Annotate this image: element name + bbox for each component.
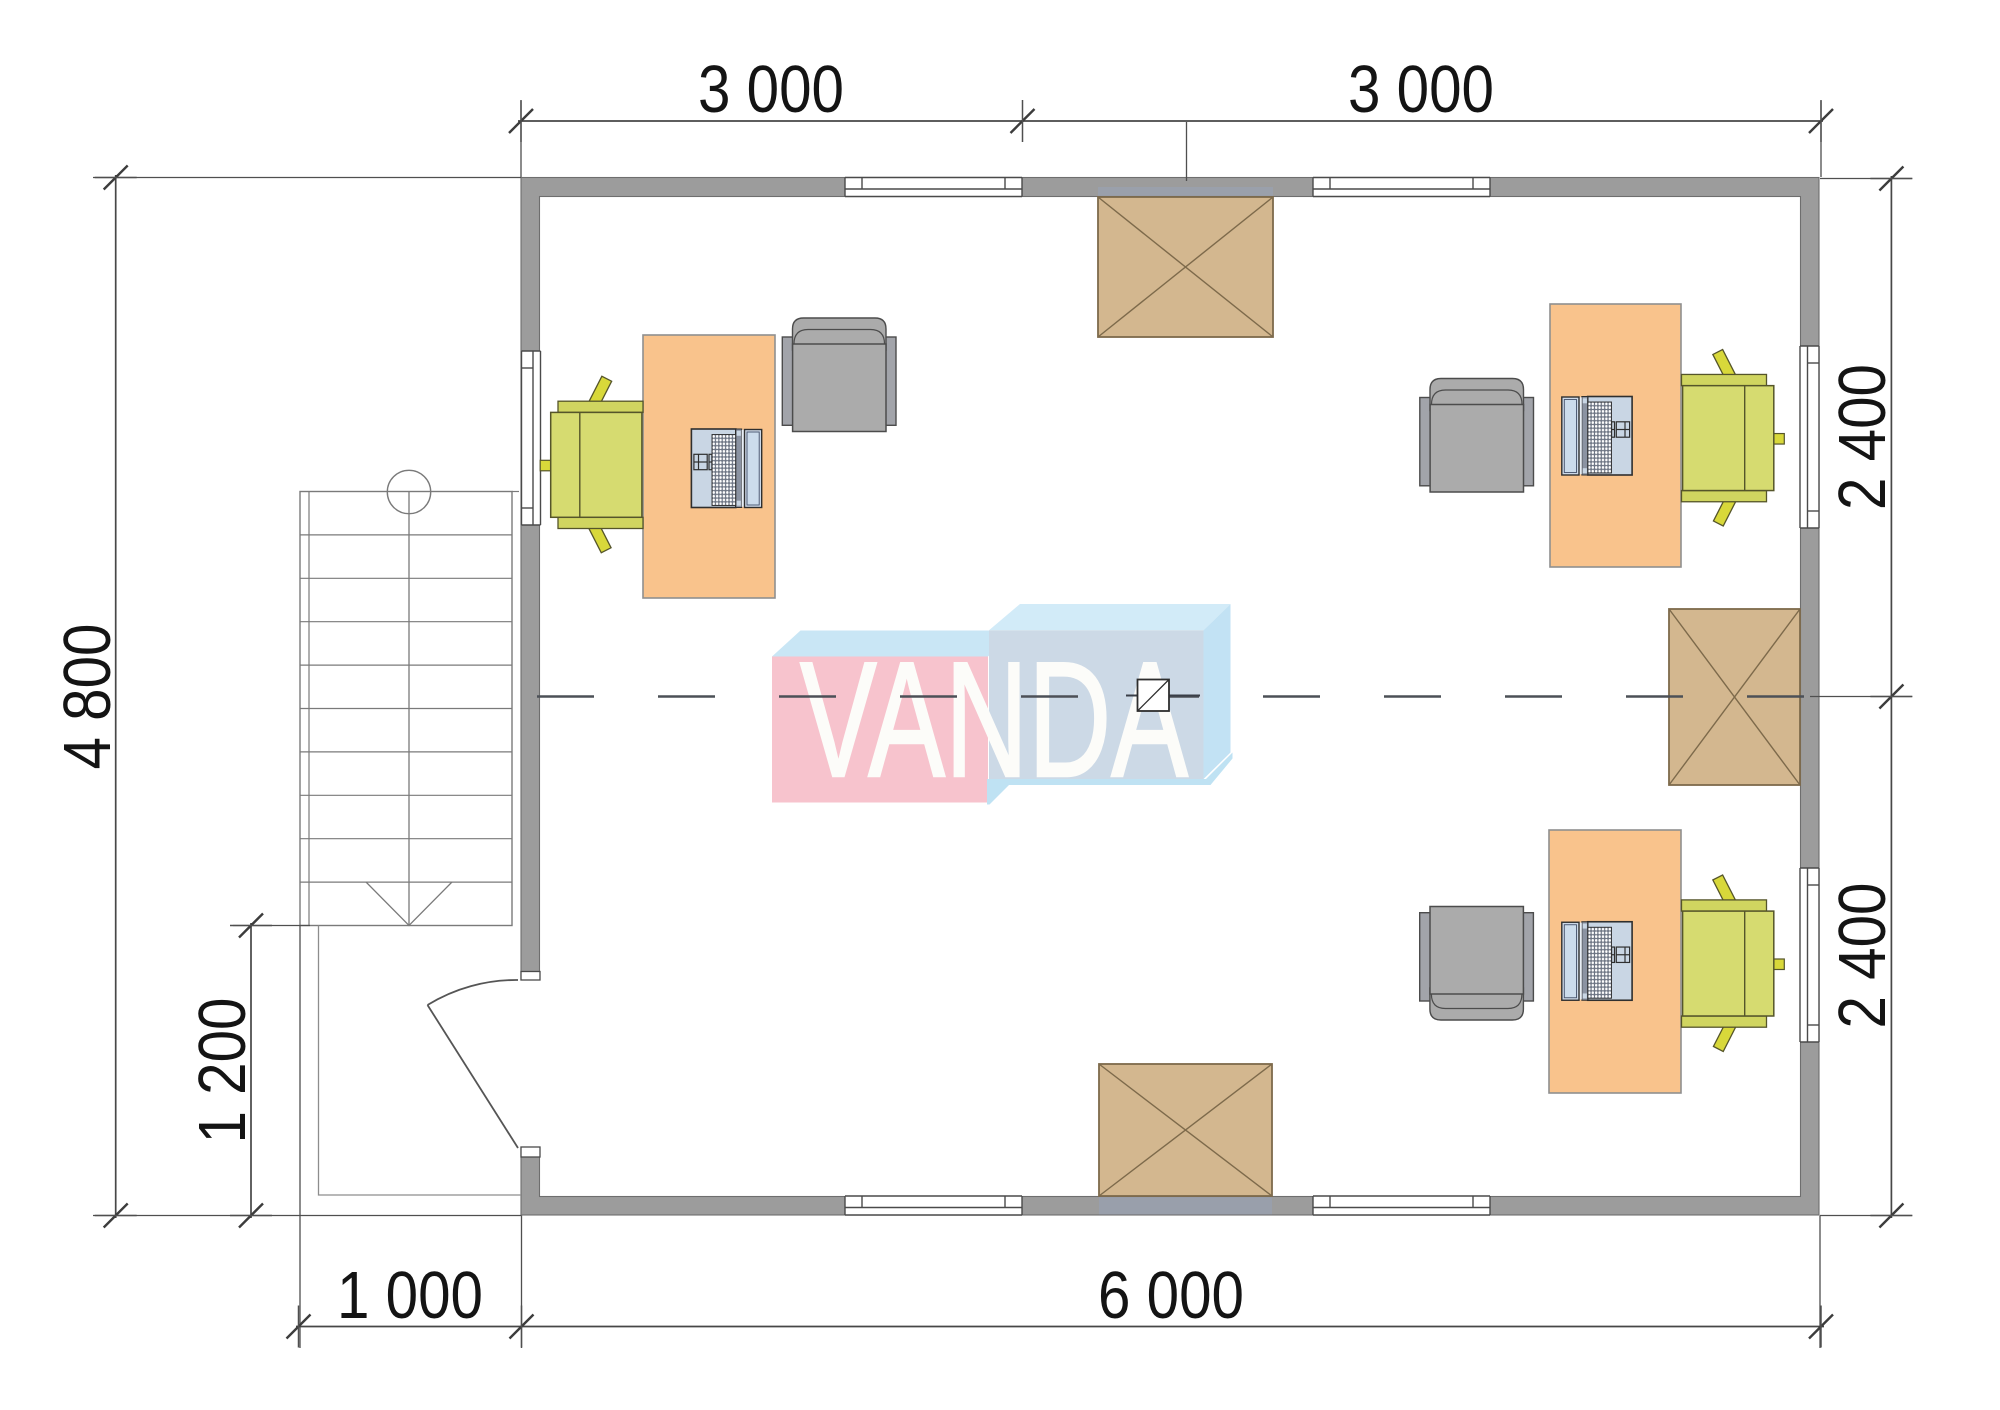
svg-text:1 200: 1 200 <box>185 998 260 1144</box>
svg-text:4 800: 4 800 <box>50 624 125 770</box>
svg-text:3 000: 3 000 <box>1348 52 1494 127</box>
svg-text:1 000: 1 000 <box>337 1258 483 1333</box>
svg-text:2 400: 2 400 <box>1825 364 1900 510</box>
svg-text:VANDA: VANDA <box>800 628 1188 811</box>
svg-text:3 000: 3 000 <box>698 52 844 127</box>
svg-text:2 400: 2 400 <box>1825 883 1900 1029</box>
svg-text:6 000: 6 000 <box>1098 1258 1244 1333</box>
